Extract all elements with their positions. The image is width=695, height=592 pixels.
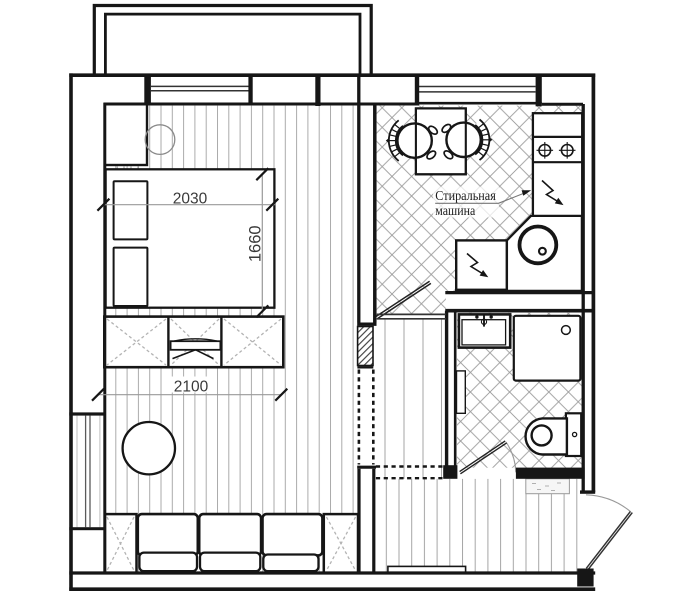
- svg-text:машина: машина: [435, 203, 475, 218]
- svg-text:Стиральная: Стиральная: [435, 188, 496, 203]
- svg-text:2100: 2100: [174, 379, 209, 396]
- svg-text:1660: 1660: [247, 225, 265, 262]
- svg-text:2030: 2030: [173, 190, 208, 207]
